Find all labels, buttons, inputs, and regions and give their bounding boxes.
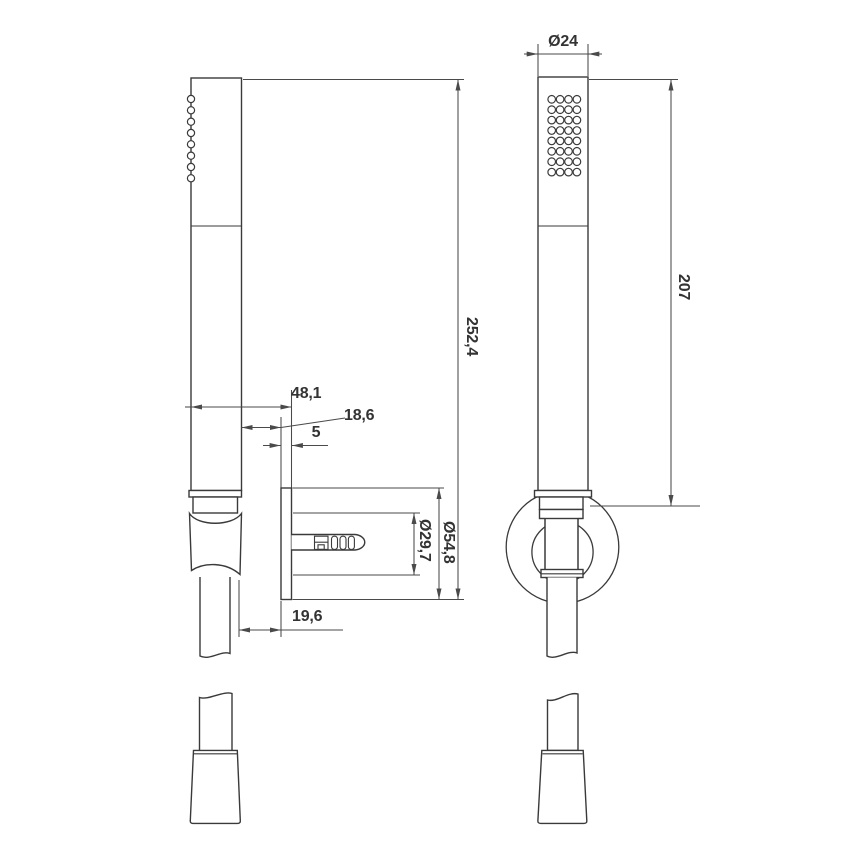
dim-label-overall-length: 252,4 bbox=[462, 317, 479, 356]
side-handle-neck bbox=[193, 497, 238, 513]
dim-label-plate-thickness: 5 bbox=[305, 425, 327, 442]
drawing-svg bbox=[0, 0, 868, 868]
side-hose-end-tube bbox=[200, 693, 233, 751]
dim-label-inner-diameter: Ø29,7 bbox=[415, 519, 432, 562]
front-view bbox=[506, 77, 619, 823]
side-wall-plate bbox=[281, 488, 292, 600]
side-holder-body bbox=[190, 514, 242, 575]
dim-label-hose-clearance: 19,6 bbox=[292, 609, 322, 626]
side-handle-endcap bbox=[189, 491, 242, 498]
front-handle-endcap bbox=[535, 491, 592, 498]
side-handle-tube bbox=[191, 78, 242, 491]
front-handle-neck bbox=[540, 497, 584, 510]
front-holder-collar bbox=[540, 510, 584, 519]
dim-label-plate-diameter: Ø54,8 bbox=[439, 521, 456, 564]
front-hose-upper bbox=[547, 578, 577, 658]
front-hose-end-tube bbox=[548, 694, 579, 751]
dim-label-handle-length: 207 bbox=[674, 274, 691, 300]
dim-label-head-diameter: Ø24 bbox=[536, 34, 590, 51]
dim-label-wall-clearance: 18,6 bbox=[344, 408, 374, 425]
side-cone-fitting bbox=[190, 750, 240, 823]
dim-label-bracket-depth: 48,1 bbox=[291, 386, 321, 403]
side-hose-upper bbox=[200, 577, 230, 657]
technical-drawing-shower-set: Ø24 48,1 18,6 5 19,6 252,4 207 Ø29,7 Ø54… bbox=[0, 0, 868, 868]
front-clamp-body bbox=[545, 519, 578, 571]
side-view bbox=[187, 78, 364, 823]
front-cone-fitting bbox=[538, 750, 587, 823]
